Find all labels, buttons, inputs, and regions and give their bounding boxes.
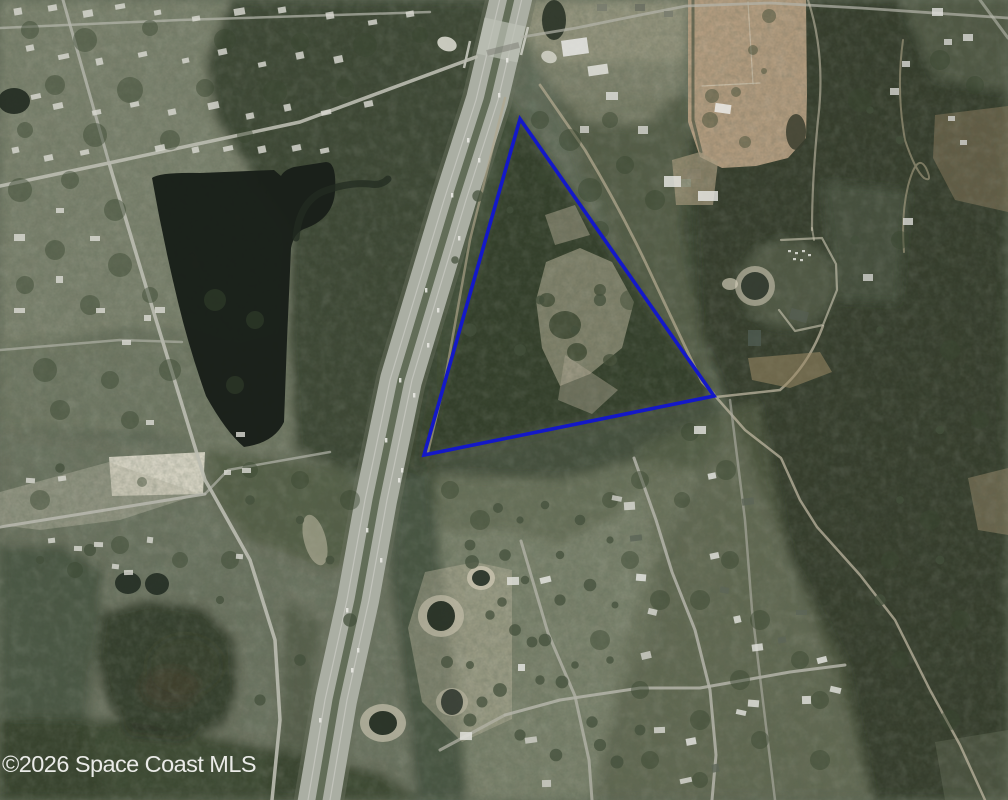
svg-text:©2026 Space Coast MLS: ©2026 Space Coast MLS [2,751,256,777]
